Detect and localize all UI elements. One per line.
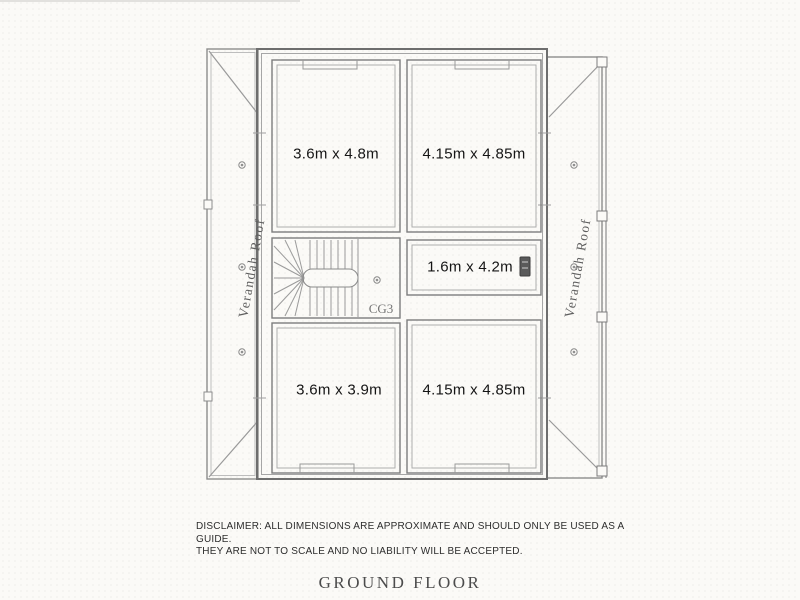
room-dimension-label: 1.6m x 4.2m	[427, 259, 513, 276]
room-dimension-label: 3.6m x 3.9m	[296, 382, 382, 399]
roof-hip-top-left	[209, 51, 258, 114]
stair-label: CG3	[369, 301, 394, 317]
roof-hip-bottom-left	[209, 421, 258, 477]
disclaimer-line-1: DISCLAIMER: ALL DIMENSIONS ARE APPROXIMA…	[196, 521, 646, 546]
floor-plan-page: 3.6m x 4.8m 4.15m x 4.85m 1.6m x 4.2m 3.…	[0, 0, 800, 600]
roof-hip-top-right	[549, 62, 602, 117]
staircase	[274, 239, 358, 317]
room-dimension-label: 4.15m x 4.85m	[422, 382, 525, 399]
roof-hip-bottom-right	[549, 420, 602, 473]
dark-wall-badge-icon	[520, 257, 530, 276]
verandah-post-icon	[204, 392, 212, 401]
room-dimension-label: 4.15m x 4.85m	[422, 146, 525, 163]
room-dimension-label: 3.6m x 4.8m	[293, 146, 379, 163]
downlight-icon	[239, 162, 245, 355]
disclaimer-line-2: THEY ARE NOT TO SCALE AND NO LIABILITY W…	[196, 546, 646, 559]
floor-plan-drawing	[0, 0, 800, 600]
downlight-icon	[374, 277, 380, 283]
verandah-post-icon	[204, 200, 212, 209]
floor-title: GROUND FLOOR	[319, 573, 482, 593]
disclaimer-text: DISCLAIMER: ALL DIMENSIONS ARE APPROXIMA…	[196, 521, 646, 559]
